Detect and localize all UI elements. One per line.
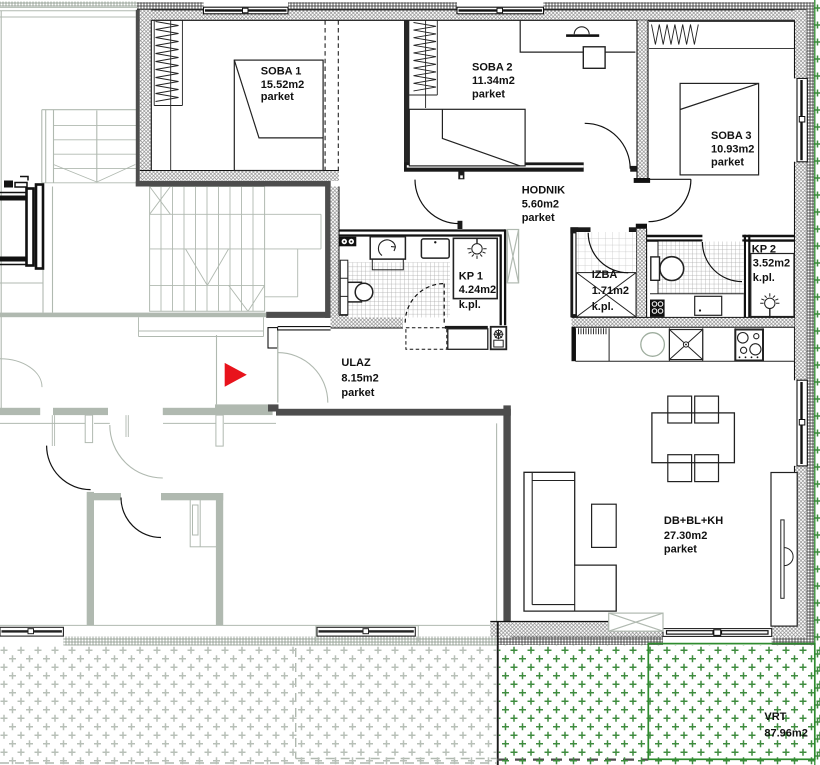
svg-text:SOBA 3: SOBA 3 xyxy=(711,130,752,142)
svg-text:HODNIK: HODNIK xyxy=(522,185,565,197)
svg-text:KP 1: KP 1 xyxy=(459,271,483,283)
svg-text:11.34m2: 11.34m2 xyxy=(472,75,515,87)
svg-text:1.71m2: 1.71m2 xyxy=(592,285,629,297)
svg-text:VRT: VRT xyxy=(764,711,786,723)
svg-text:10.93m2: 10.93m2 xyxy=(711,143,754,155)
svg-text:KP 2: KP 2 xyxy=(752,243,776,255)
svg-text:3.52m2: 3.52m2 xyxy=(753,258,790,270)
svg-text:SOBA 1: SOBA 1 xyxy=(261,66,302,78)
svg-text:4.24m2: 4.24m2 xyxy=(459,284,496,296)
svg-text:parket: parket xyxy=(522,212,555,224)
svg-text:k.pl.: k.pl. xyxy=(753,272,775,284)
svg-text:k.pl.: k.pl. xyxy=(592,301,614,313)
svg-text:87.96m2: 87.96m2 xyxy=(764,727,807,739)
svg-text:parket: parket xyxy=(261,91,294,103)
svg-text:IZBA: IZBA xyxy=(592,269,618,281)
svg-text:27.30m2: 27.30m2 xyxy=(664,530,707,542)
svg-text:parket: parket xyxy=(711,157,744,169)
svg-text:parket: parket xyxy=(664,543,697,555)
svg-text:15.52m2: 15.52m2 xyxy=(261,79,304,91)
svg-text:parket: parket xyxy=(341,387,374,399)
svg-text:5.60m2: 5.60m2 xyxy=(522,199,559,211)
svg-text:ULAZ: ULAZ xyxy=(341,357,371,369)
svg-text:8.15m2: 8.15m2 xyxy=(341,373,378,385)
svg-text:DB+BL+KH: DB+BL+KH xyxy=(664,515,723,527)
svg-text:k.pl.: k.pl. xyxy=(459,299,481,311)
svg-text:parket: parket xyxy=(472,88,505,100)
svg-text:SOBA 2: SOBA 2 xyxy=(472,62,513,74)
